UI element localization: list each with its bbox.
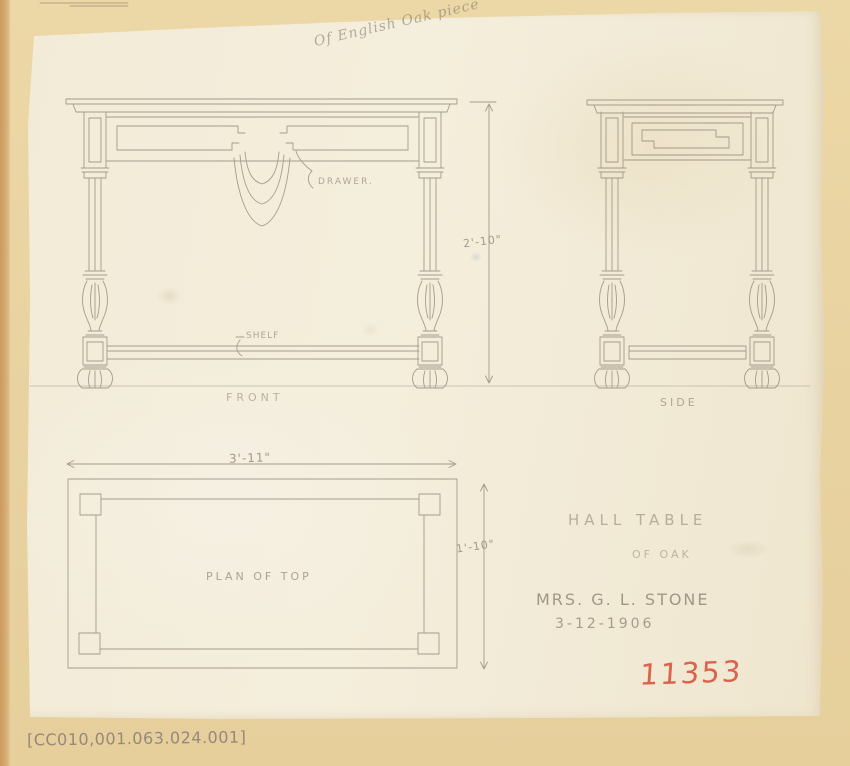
width-dimension-label: 3'-11"	[229, 450, 272, 465]
client-name: MRS. G. L. STONE	[536, 590, 710, 609]
album-page: Of English Oak piece DRAWER. SHELF FRONT…	[0, 0, 850, 766]
album-pencil-mark	[40, 3, 128, 6]
accession-number: 11353	[639, 654, 744, 692]
catalog-number: [CC010,001.063.024.001]	[27, 727, 247, 749]
front-view-label: FRONT	[226, 391, 284, 404]
album-binding-edge	[0, 0, 10, 766]
drawing-date: 3-12-1906	[555, 616, 654, 632]
drawer-callout: DRAWER.	[318, 177, 374, 187]
drawing-material: OF OAK	[632, 548, 692, 561]
side-view-label: SIDE	[660, 396, 698, 409]
shelf-callout: SHELF	[246, 331, 279, 341]
plan-view-label: PLAN OF TOP	[206, 570, 312, 583]
drawing-title: HALL TABLE	[568, 511, 707, 529]
drawing-sheet	[20, 4, 828, 720]
